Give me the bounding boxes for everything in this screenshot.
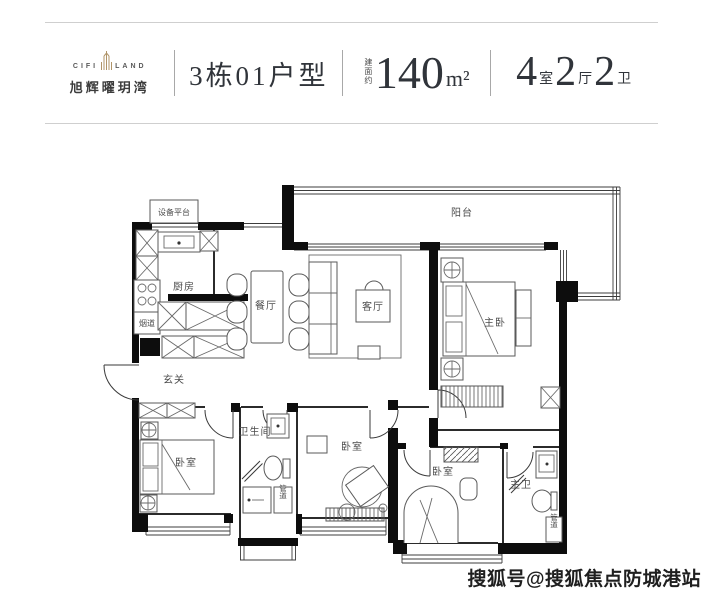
label-duct-2: 管道 <box>549 512 558 530</box>
label-bathroom: 卫生间 <box>239 425 272 438</box>
stove <box>134 280 160 312</box>
living-furniture <box>309 255 401 359</box>
floorplan-drawing: 设备平台 阳台 厨房 烟道 餐厅 客厅 主卧 玄关 卧室 卫生间 卧室 卧室 主… <box>0 0 703 595</box>
fridge <box>200 231 218 251</box>
label-balcony: 阳台 <box>451 206 473 219</box>
label-bedroom-left: 卧室 <box>175 456 197 469</box>
label-master-bedroom: 主卧 <box>484 316 506 329</box>
bedroom-right-furniture <box>404 447 478 543</box>
label-master-bathroom: 主卫 <box>510 479 532 491</box>
bedroom-left-door <box>205 410 233 438</box>
bathroom-inner-door <box>242 461 263 482</box>
label-bedroom-middle: 卧室 <box>341 440 363 453</box>
label-duct-1: 管道 <box>278 483 287 501</box>
label-living: 客厅 <box>362 300 384 313</box>
entry-door <box>104 365 139 400</box>
label-bedroom-right: 卧室 <box>432 465 454 478</box>
label-equipment-platform: 设备平台 <box>158 207 190 217</box>
shaft-box <box>541 387 560 408</box>
master-bedroom-furniture <box>441 258 560 408</box>
label-dining: 餐厅 <box>255 299 277 312</box>
label-kitchen: 厨房 <box>173 280 195 293</box>
bedroom-right-door <box>404 450 430 476</box>
washing-machine <box>243 487 271 513</box>
master-bathroom-door <box>507 452 533 478</box>
label-foyer: 玄关 <box>163 373 185 386</box>
label-flue: 烟道 <box>139 318 155 328</box>
watermark: 搜狐号@搜狐焦点防城港站 <box>467 564 701 591</box>
floorplan-page: CIFI LAND 旭辉曜玥湾 3栋01户型 <box>0 0 703 595</box>
